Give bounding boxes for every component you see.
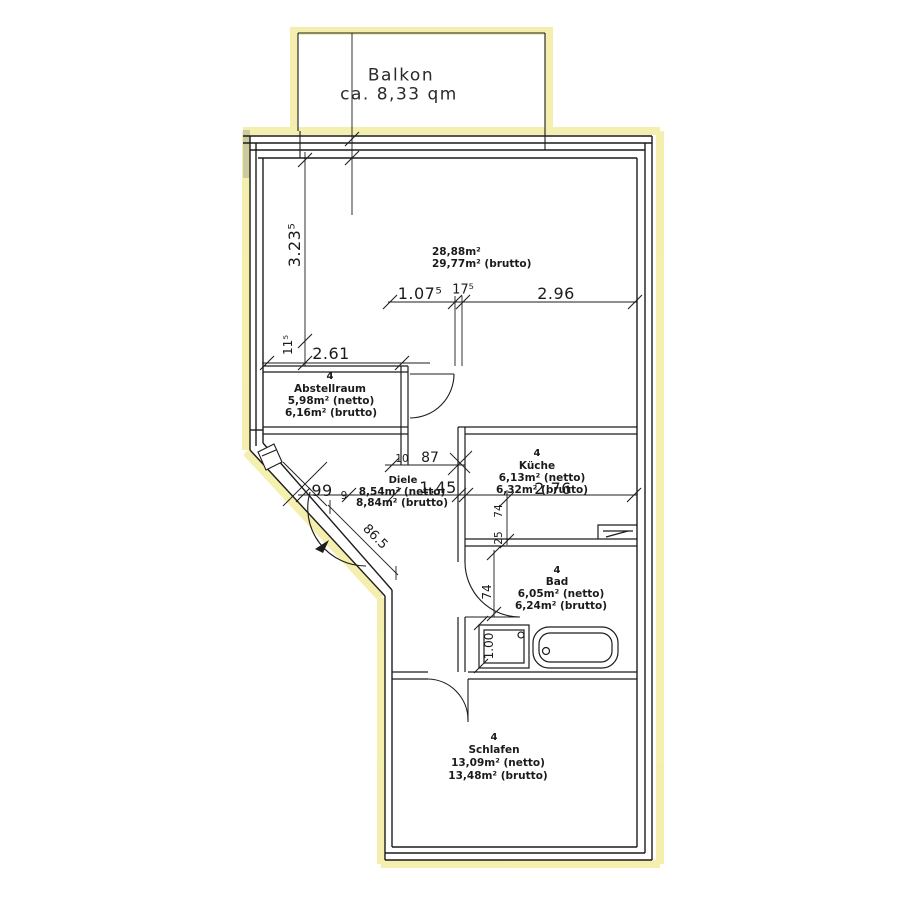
room-bad-brutto: 6,24m² (brutto)	[515, 601, 607, 612]
dim-living-height: 3.23⁵	[287, 223, 303, 268]
floor-plan: Balkon ca. 8,33 qm 28,88m² 29,77m² (brut…	[0, 0, 900, 900]
dim-entry-seg-a: 99	[311, 483, 332, 499]
room-schlafen-brutto: 13,48m² (brutto)	[448, 771, 547, 782]
room-wohnen-netto: 28,88m²	[432, 247, 481, 258]
room-schlafen-netto: 13,09m² (netto)	[451, 758, 545, 769]
floor-plan-drawing	[0, 0, 900, 900]
scan-smudge	[243, 130, 250, 178]
bedroom-door-arc	[428, 679, 468, 720]
living-door-arc	[410, 374, 454, 418]
bathtub	[533, 627, 618, 668]
door-arcs	[258, 374, 520, 722]
dim-kueche-seg-b: 25	[494, 531, 505, 544]
room-bad-netto: 6,05m² (netto)	[518, 589, 605, 600]
room-abstellraum-brutto: 6,16m² (brutto)	[285, 408, 377, 419]
dim-bad-door: 74	[481, 584, 493, 599]
room-schlafen-unit: 4	[491, 733, 498, 743]
dim-living-seg-b: 2.96	[537, 286, 575, 302]
balcony-label: Balkon	[368, 68, 434, 85]
dim-abstellraum-width: 2.61	[312, 346, 350, 362]
dim-living-seg-a: 1.07⁵	[398, 286, 443, 302]
room-abstellraum-netto: 5,98m² (netto)	[288, 396, 375, 407]
room-wohnen-brutto: 29,77m² (brutto)	[432, 259, 531, 270]
highlighter-marks	[243, 31, 660, 864]
room-bad-name: Bad	[546, 577, 569, 588]
room-diele-name: Diele	[389, 476, 418, 486]
dim-kueche-width: 2.76	[534, 481, 572, 497]
dim-entry-seg-b: 9	[341, 491, 348, 502]
room-diele-brutto: 8,84m² (brutto)	[356, 498, 448, 509]
dim-kueche-seg-a: 74	[494, 504, 505, 517]
room-schlafen-name: Schlafen	[468, 745, 519, 756]
room-abstellraum-name: Abstellraum	[294, 384, 366, 395]
balcony-area: ca. 8,33 qm	[340, 87, 458, 104]
dim-diele-wall: 10	[395, 454, 408, 465]
room-bad-unit: 4	[554, 566, 561, 576]
room-kueche-unit: 4	[534, 449, 541, 459]
dim-living-wall: 17⁵	[452, 284, 474, 297]
dim-diele-door: 87	[421, 451, 439, 465]
dim-diele-width: 1.45	[419, 480, 457, 496]
room-kueche-name: Küche	[519, 461, 555, 472]
dim-wall-thickness: 11⁵	[282, 335, 294, 355]
dim-shower-width: 1.00	[483, 633, 495, 660]
room-abstellraum-unit: 4	[327, 372, 334, 382]
